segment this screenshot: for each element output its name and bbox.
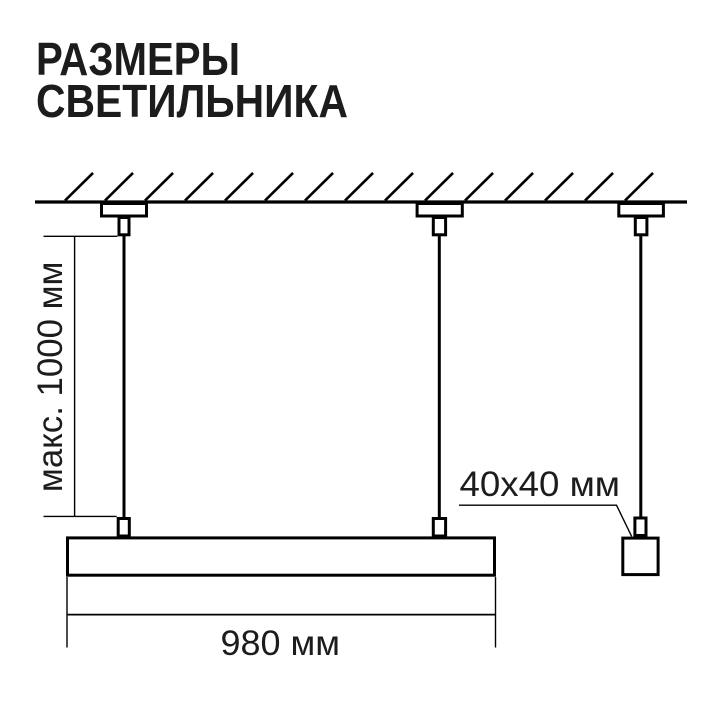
- svg-text:980 мм: 980 мм: [221, 624, 341, 663]
- svg-text:макс. 1000 мм: макс. 1000 мм: [31, 262, 70, 493]
- svg-text:СВЕТИЛЬНИКА: СВЕТИЛЬНИКА: [36, 75, 348, 127]
- svg-text:40x40 мм: 40x40 мм: [460, 465, 621, 504]
